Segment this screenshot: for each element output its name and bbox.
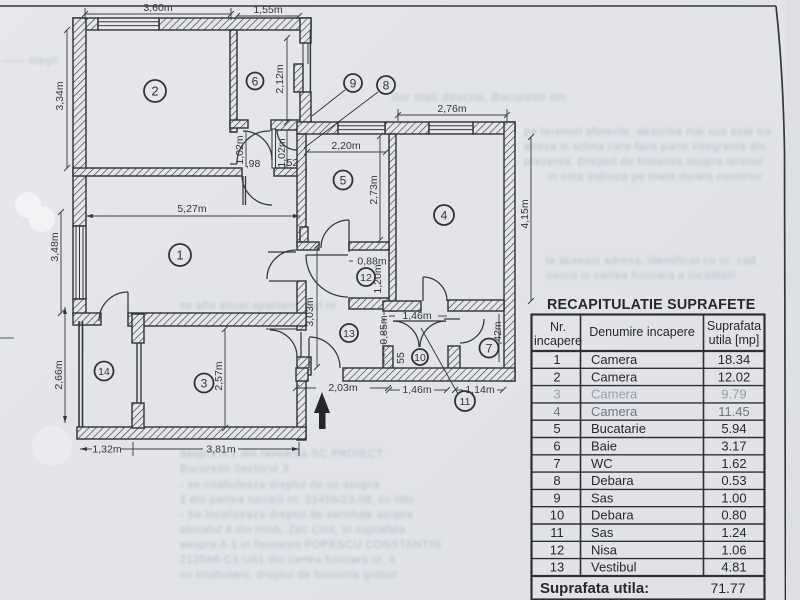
svg-text:7: 7	[553, 456, 560, 471]
svg-text:1,55m: 1,55m	[253, 4, 282, 16]
svg-text:1,14m: 1,14m	[465, 384, 494, 396]
svg-text:Debara: Debara	[591, 508, 634, 523]
svg-text:18.34: 18.34	[718, 352, 751, 367]
svg-text:3: 3	[201, 377, 208, 391]
svg-text:3,60m: 3,60m	[143, 2, 172, 14]
svg-text:11: 11	[550, 525, 564, 540]
svg-text:0,85m: 0,85m	[378, 315, 390, 344]
svg-text:3,81m: 3,81m	[206, 444, 235, 456]
svg-text:Camera: Camera	[591, 352, 638, 367]
svg-text:9: 9	[553, 490, 560, 505]
svg-text:10: 10	[550, 508, 564, 523]
svg-text:2,20m: 2,20m	[331, 140, 360, 152]
svg-text:11.45: 11.45	[718, 404, 750, 419]
svg-text:1,46m: 1,46m	[402, 384, 431, 396]
svg-text:5: 5	[553, 421, 560, 436]
svg-text:Nr.: Nr.	[550, 320, 566, 334]
svg-text:2,57m: 2,57m	[213, 361, 225, 390]
svg-text:0.80: 0.80	[721, 508, 746, 523]
svg-text:55: 55	[395, 352, 407, 364]
svg-text:13: 13	[550, 560, 564, 575]
svg-text:1: 1	[553, 352, 560, 367]
svg-text:2,66m: 2,66m	[53, 360, 65, 389]
svg-text:3: 3	[553, 387, 560, 402]
svg-text:13: 13	[343, 328, 355, 340]
svg-text:2,76m: 2,76m	[437, 103, 466, 115]
svg-text:6: 6	[252, 75, 259, 89]
svg-text:utila [mp]: utila [mp]	[709, 333, 760, 347]
svg-text:Vestibul: Vestibul	[591, 560, 637, 575]
svg-text:1.24: 1.24	[721, 525, 746, 540]
svg-text:Suprafata utila:: Suprafata utila:	[540, 580, 649, 597]
svg-text:11: 11	[460, 396, 471, 408]
svg-text:Sas: Sas	[591, 490, 614, 505]
svg-text:,42m: ,42m	[492, 321, 504, 345]
svg-text:3,34m: 3,34m	[54, 81, 66, 110]
svg-text:8: 8	[383, 79, 390, 93]
svg-text:5.94: 5.94	[721, 421, 746, 436]
svg-text:Bucatarie: Bucatarie	[591, 421, 646, 436]
svg-text:Camera: Camera	[591, 369, 638, 384]
svg-text:12.02: 12.02	[718, 369, 751, 384]
svg-text:RECAPITULATIE SUPRAFETE: RECAPITULATIE SUPRAFETE	[547, 297, 755, 313]
svg-text:3,48m: 3,48m	[49, 232, 61, 261]
svg-text:4.81: 4.81	[721, 560, 746, 575]
svg-text:Sas: Sas	[591, 525, 614, 540]
svg-text:9: 9	[350, 77, 357, 91]
svg-text:5,27m: 5,27m	[177, 203, 206, 215]
svg-text:Camera: Camera	[591, 387, 638, 402]
svg-text:3,03m: 3,03m	[304, 297, 316, 326]
svg-text:,52: ,52	[284, 157, 299, 169]
svg-text:Camera: Camera	[591, 404, 638, 419]
svg-text:Debara: Debara	[591, 473, 634, 488]
svg-text:1,20m: 1,20m	[372, 264, 384, 293]
svg-text:4: 4	[553, 404, 560, 419]
svg-text:4: 4	[441, 209, 448, 223]
svg-text:Denumire incapere: Denumire incapere	[589, 325, 695, 339]
svg-text:incapere: incapere	[534, 334, 582, 348]
svg-text:1: 1	[176, 248, 183, 263]
svg-text:Baie: Baie	[591, 439, 617, 454]
svg-text:1.00: 1.00	[721, 490, 746, 505]
svg-text:Suprafata: Suprafata	[707, 319, 761, 333]
svg-text:10: 10	[414, 352, 426, 364]
svg-text:WC: WC	[591, 456, 613, 471]
svg-text:Nisa: Nisa	[591, 542, 618, 557]
svg-text:1,02m: 1,02m	[234, 135, 246, 164]
svg-text:2: 2	[151, 84, 158, 99]
svg-text:0.53: 0.53	[721, 473, 746, 488]
svg-text:12: 12	[360, 272, 372, 284]
svg-text:4,15m: 4,15m	[519, 199, 531, 228]
svg-text:2: 2	[553, 369, 560, 384]
svg-text:5: 5	[340, 174, 347, 188]
svg-text:6: 6	[553, 439, 560, 454]
svg-text:9.79: 9.79	[721, 387, 746, 402]
svg-text:,98: ,98	[246, 158, 261, 170]
svg-text:2,73m: 2,73m	[368, 175, 380, 204]
svg-text:2,03m: 2,03m	[328, 382, 357, 394]
svg-text:12: 12	[550, 542, 564, 557]
svg-text:14: 14	[98, 366, 110, 378]
svg-text:8: 8	[553, 473, 560, 488]
svg-text:1.06: 1.06	[721, 542, 746, 557]
svg-text:71.77: 71.77	[710, 580, 745, 596]
svg-text:1,32m: 1,32m	[92, 444, 121, 456]
svg-text:3.17: 3.17	[721, 439, 746, 454]
svg-text:2,12m: 2,12m	[274, 64, 286, 93]
svg-text:1,46m: 1,46m	[402, 310, 431, 322]
svg-text:7: 7	[486, 342, 493, 356]
svg-text:1.62: 1.62	[721, 456, 746, 471]
